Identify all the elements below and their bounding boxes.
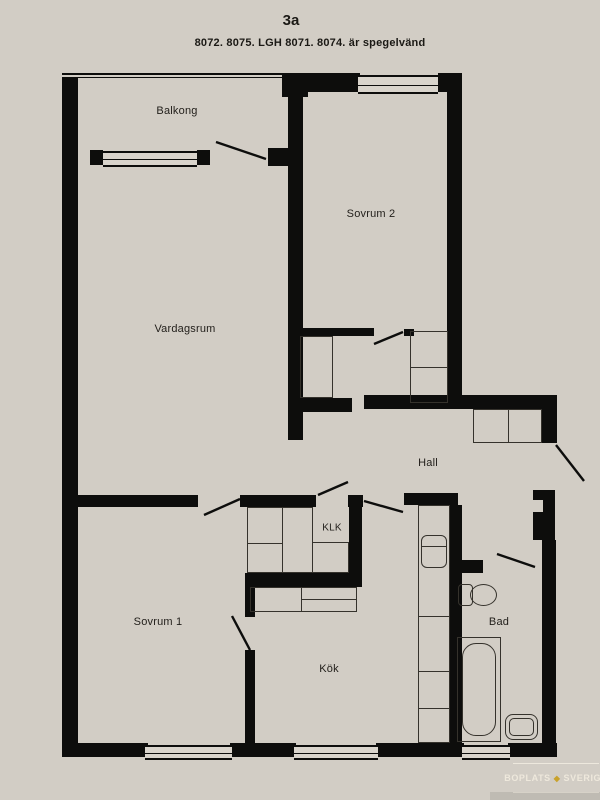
wardrobe [410,331,448,403]
door-swing-bedroom2 [374,332,403,344]
wall-segment [197,150,210,165]
stove [421,535,447,568]
wall-segment [447,73,462,407]
room-label-hall: Hall [418,457,438,469]
window [294,745,378,760]
kitchen-cabinet [301,587,357,612]
wall-segment [296,398,352,412]
door-swing-bathroom [497,554,535,567]
wall-segment [230,743,296,757]
diamond-icon: ◆ [554,774,561,783]
wall-segment [90,150,103,165]
wardrobe [247,507,283,573]
wardrobe [312,542,349,573]
wall-segment [62,743,148,757]
room-label-kitchen: Kök [319,663,339,675]
wall-segment [296,328,374,336]
page-title: 3a [283,12,300,29]
wall-segment [78,495,198,507]
balcony-railing [62,73,290,75]
toilet-bowl [470,584,497,606]
wall-recess [533,500,543,512]
window [358,75,438,94]
wall-segment [348,495,363,507]
wall-segment [62,77,78,757]
room-label-bedroom1: Sovrum 1 [134,616,183,628]
kitchen-cabinet [250,587,302,612]
brand-watermark: BOPLATS ◆ SVERIGE [513,763,599,793]
watermark-shadow [490,792,600,800]
balcony-railing [62,77,290,78]
page-subtitle: 8072. 8075. LGH 8071. 8074. är spegelvän… [195,37,426,49]
floorplan-page: 3a 8072. 8075. LGH 8071. 8074. är spegel… [0,0,600,800]
door-swing-bedroom1-kitchen [232,616,250,650]
door-swing-entrance [556,445,584,481]
wall-segment [349,507,362,575]
room-label-balcony: Balkong [156,105,197,117]
wardrobe [473,409,542,443]
closet [300,336,333,398]
door-swing-kitchen [364,501,403,512]
door-swing-bedroom1 [204,499,240,515]
wall-segment [376,743,464,757]
wall-segment [533,490,555,540]
washbasin-inner [509,718,534,736]
wardrobe [282,507,313,573]
wall-segment [364,395,557,409]
watermark-brand-right: SVERIGE [564,773,600,783]
wall-segment [240,495,316,507]
window [462,745,510,760]
window [145,745,232,760]
room-label-livingroom: Vardagsrum [154,323,215,335]
wall-segment [268,148,288,166]
room-label-bathroom: Bad [489,616,509,628]
bathtub-inner [462,643,496,736]
door-swing-balcony [216,142,266,159]
window [103,151,197,167]
watermark-brand-left: BOPLATS [504,773,551,783]
room-label-closet: KLK [322,523,342,534]
wall-segment [542,395,557,443]
wall-segment [404,493,458,505]
room-label-bedroom2: Sovrum 2 [347,208,396,220]
wall-segment [450,560,483,573]
wall-segment [245,650,255,744]
wall-segment [245,573,362,587]
door-swing-closet [318,482,348,495]
wall-segment [542,540,556,757]
